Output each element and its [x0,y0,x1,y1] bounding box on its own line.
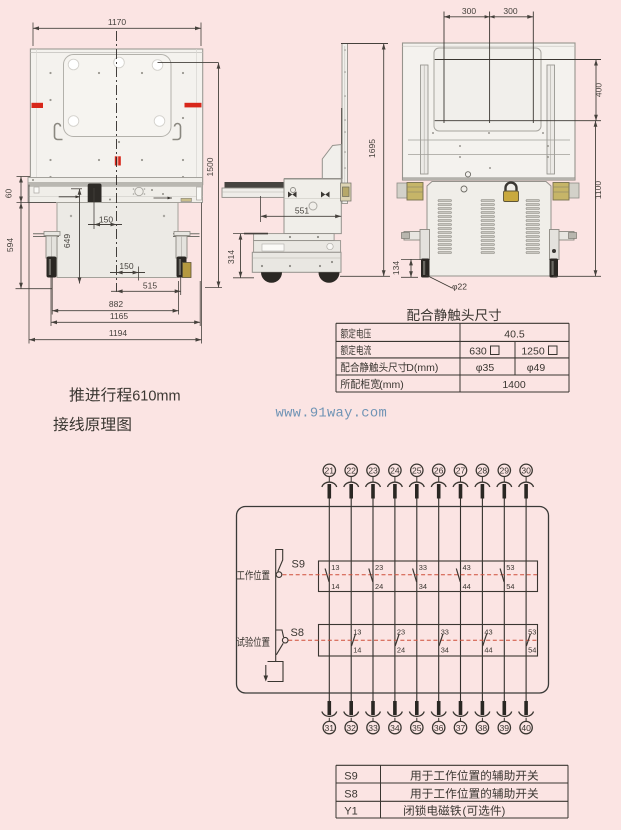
svg-text:33: 33 [441,627,449,636]
svg-text:24: 24 [375,582,383,591]
svg-text:594: 594 [5,238,15,252]
svg-text:134: 134 [391,261,401,275]
svg-text:630: 630 [469,346,487,358]
svg-text:44: 44 [484,646,492,655]
svg-text:515: 515 [143,281,157,291]
svg-text:38: 38 [478,723,488,733]
svg-text:39: 39 [500,723,510,733]
svg-text:649: 649 [62,234,72,248]
svg-text:25: 25 [412,466,422,476]
svg-text:φ35: φ35 [476,362,495,374]
svg-text:21: 21 [325,466,335,476]
svg-text:53: 53 [528,627,536,636]
svg-text:1165: 1165 [110,311,129,321]
svg-text:1170: 1170 [108,17,127,27]
svg-text:13: 13 [331,563,339,572]
svg-text:(mm): (mm) [379,379,404,391]
svg-text:551: 551 [295,206,309,216]
svg-text:40.5: 40.5 [504,329,525,341]
svg-text:14: 14 [331,582,339,591]
svg-text:28: 28 [478,466,488,476]
svg-text:1100: 1100 [593,181,603,200]
svg-text:610mm: 610mm [132,389,180,405]
svg-text:34: 34 [390,723,400,733]
svg-text:S9: S9 [292,558,305,570]
svg-text:37: 37 [456,723,466,733]
svg-text:22: 22 [346,466,356,476]
svg-text:): ) [502,805,506,817]
svg-text:34: 34 [419,582,427,591]
svg-text:150: 150 [119,261,133,271]
svg-text:31: 31 [325,723,335,733]
svg-text:1194: 1194 [109,328,128,338]
svg-text:24: 24 [397,646,405,655]
svg-text:43: 43 [484,627,492,636]
svg-text:S8: S8 [344,788,357,800]
svg-text:54: 54 [506,582,514,591]
svg-text:33: 33 [419,563,427,572]
svg-text:300: 300 [462,6,476,16]
svg-text:1695: 1695 [367,139,377,158]
svg-text:φ49: φ49 [527,362,546,374]
svg-text:www.91way.com: www.91way.com [276,407,388,422]
svg-text:32: 32 [346,723,356,733]
svg-text:1500: 1500 [205,157,215,176]
svg-text:1400: 1400 [502,379,526,391]
svg-text:29: 29 [500,466,510,476]
svg-text:33: 33 [368,723,378,733]
svg-text:27: 27 [456,466,466,476]
svg-text:36: 36 [434,723,444,733]
svg-text:S8: S8 [291,627,304,639]
svg-text:Y1: Y1 [344,805,357,817]
svg-text:882: 882 [109,299,123,309]
svg-text:23: 23 [375,563,383,572]
svg-text:(: ( [463,805,467,817]
svg-text:54: 54 [528,646,536,655]
svg-text:φ22: φ22 [452,282,467,292]
svg-text:60: 60 [4,189,14,199]
svg-text:53: 53 [506,563,514,572]
svg-text:400: 400 [594,83,604,97]
svg-text:34: 34 [441,646,449,655]
svg-text:35: 35 [412,723,422,733]
svg-text:40: 40 [521,723,531,733]
svg-text:44: 44 [463,582,471,591]
svg-text:24: 24 [390,466,400,476]
svg-text:14: 14 [353,646,361,655]
svg-text:D(mm): D(mm) [406,362,438,374]
svg-text:30: 30 [521,466,531,476]
svg-text:13: 13 [353,627,361,636]
svg-text:300: 300 [503,6,517,16]
svg-text:1250: 1250 [521,346,545,358]
svg-text:26: 26 [434,466,444,476]
svg-text:S9: S9 [344,770,357,782]
svg-text:23: 23 [368,466,378,476]
svg-text:314: 314 [226,250,236,264]
svg-text:23: 23 [397,627,405,636]
svg-text:43: 43 [463,563,471,572]
